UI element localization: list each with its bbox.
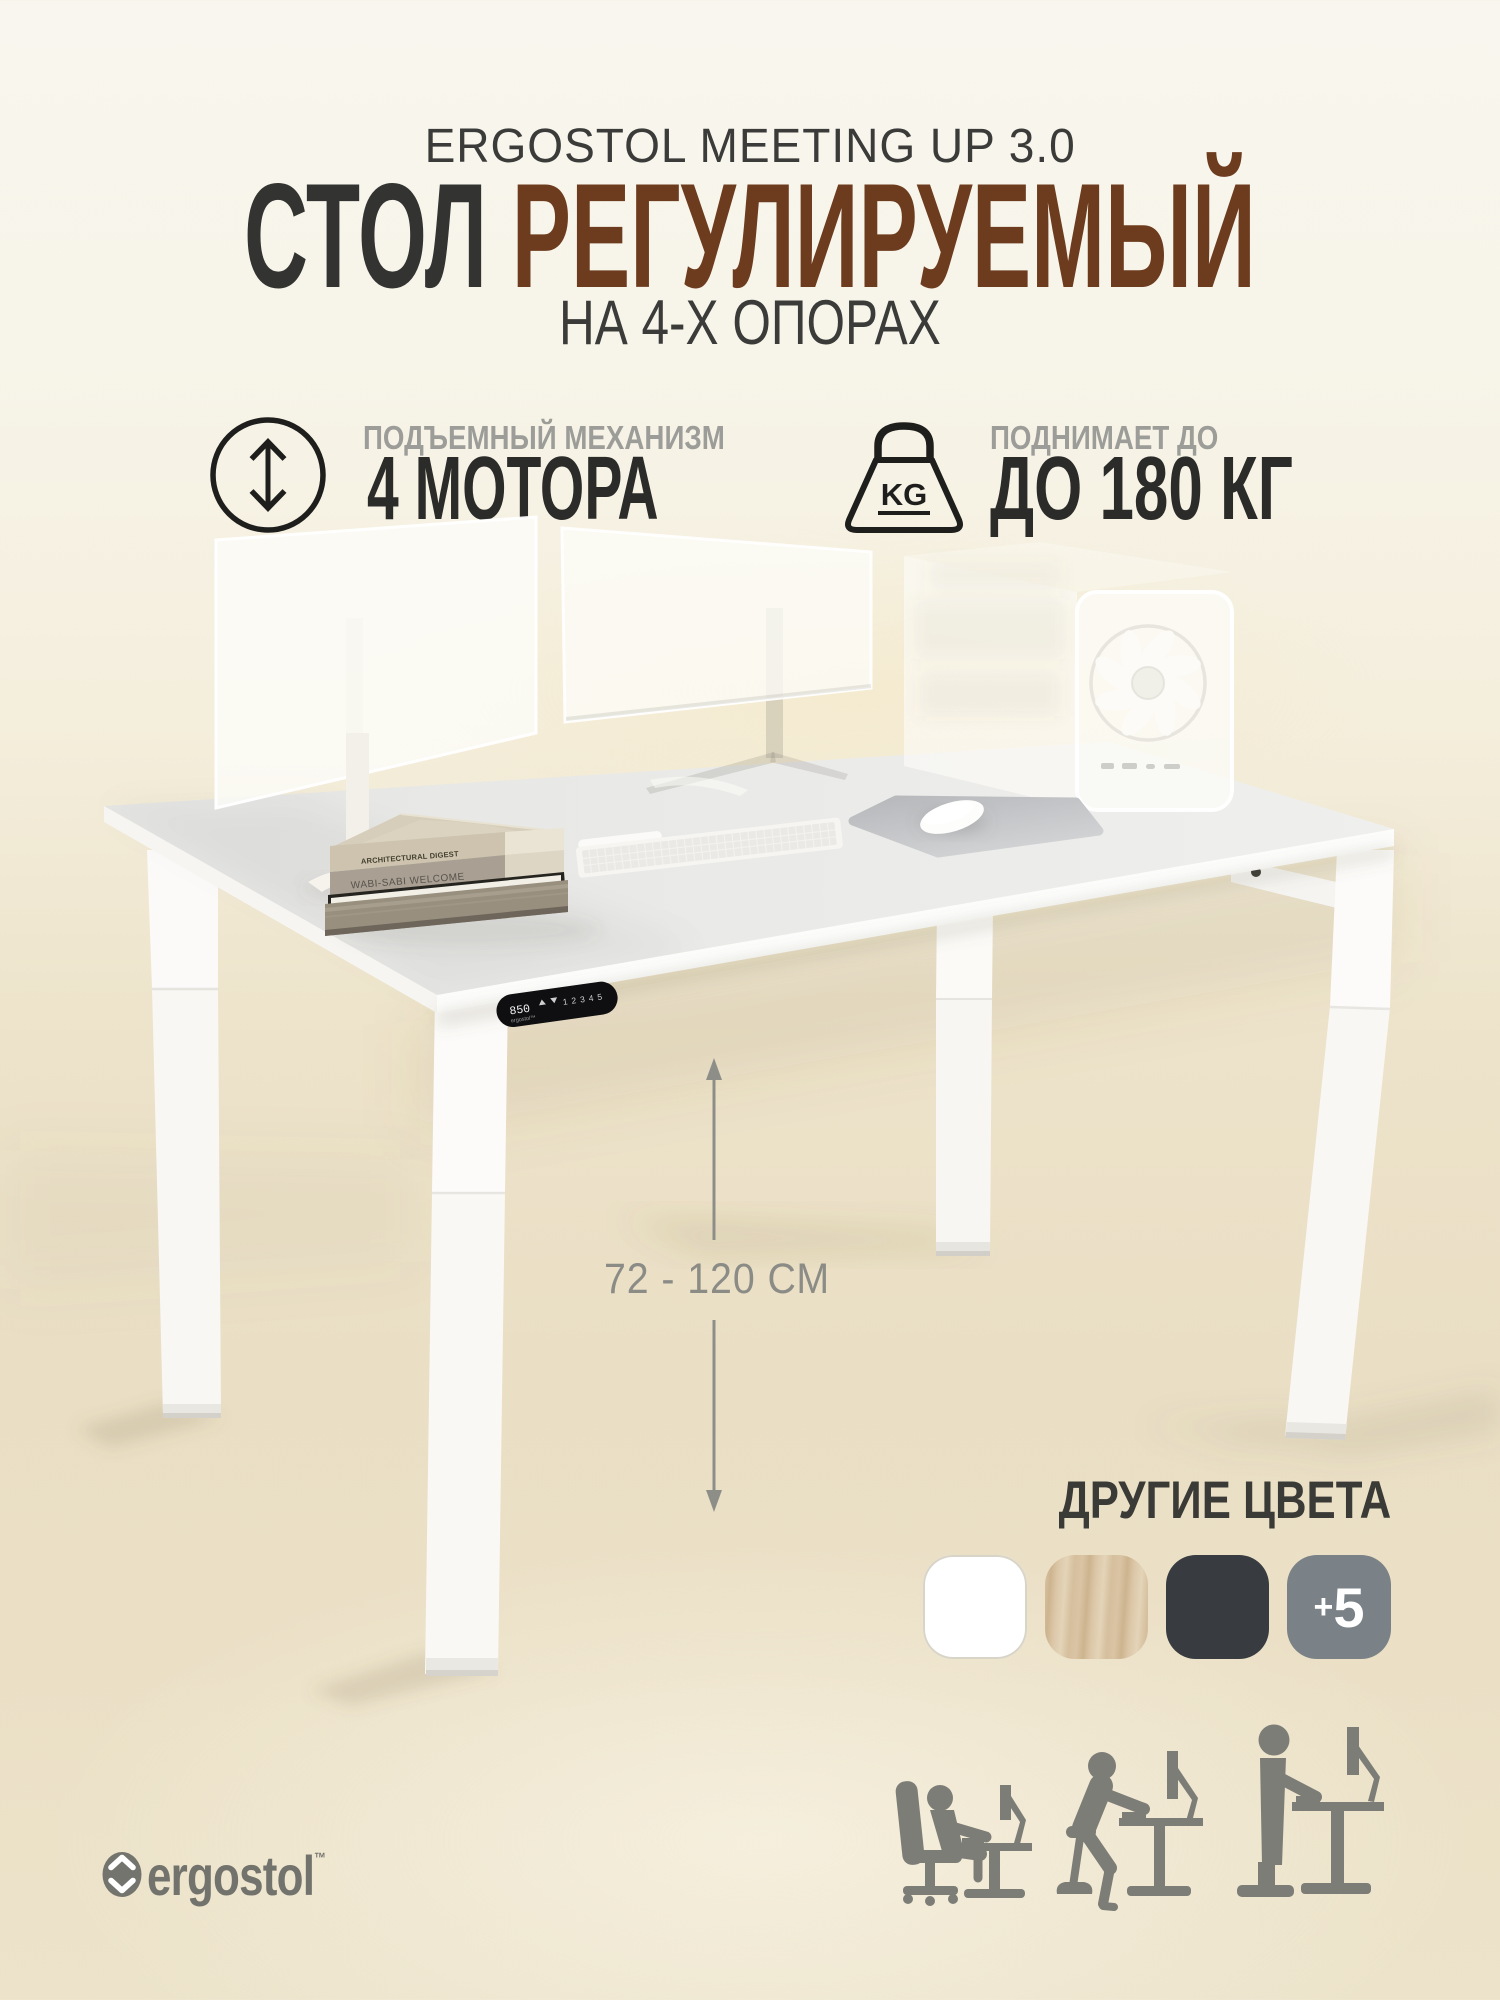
svg-text:72 - 120 СМ: 72 - 120 СМ [604, 1255, 830, 1303]
